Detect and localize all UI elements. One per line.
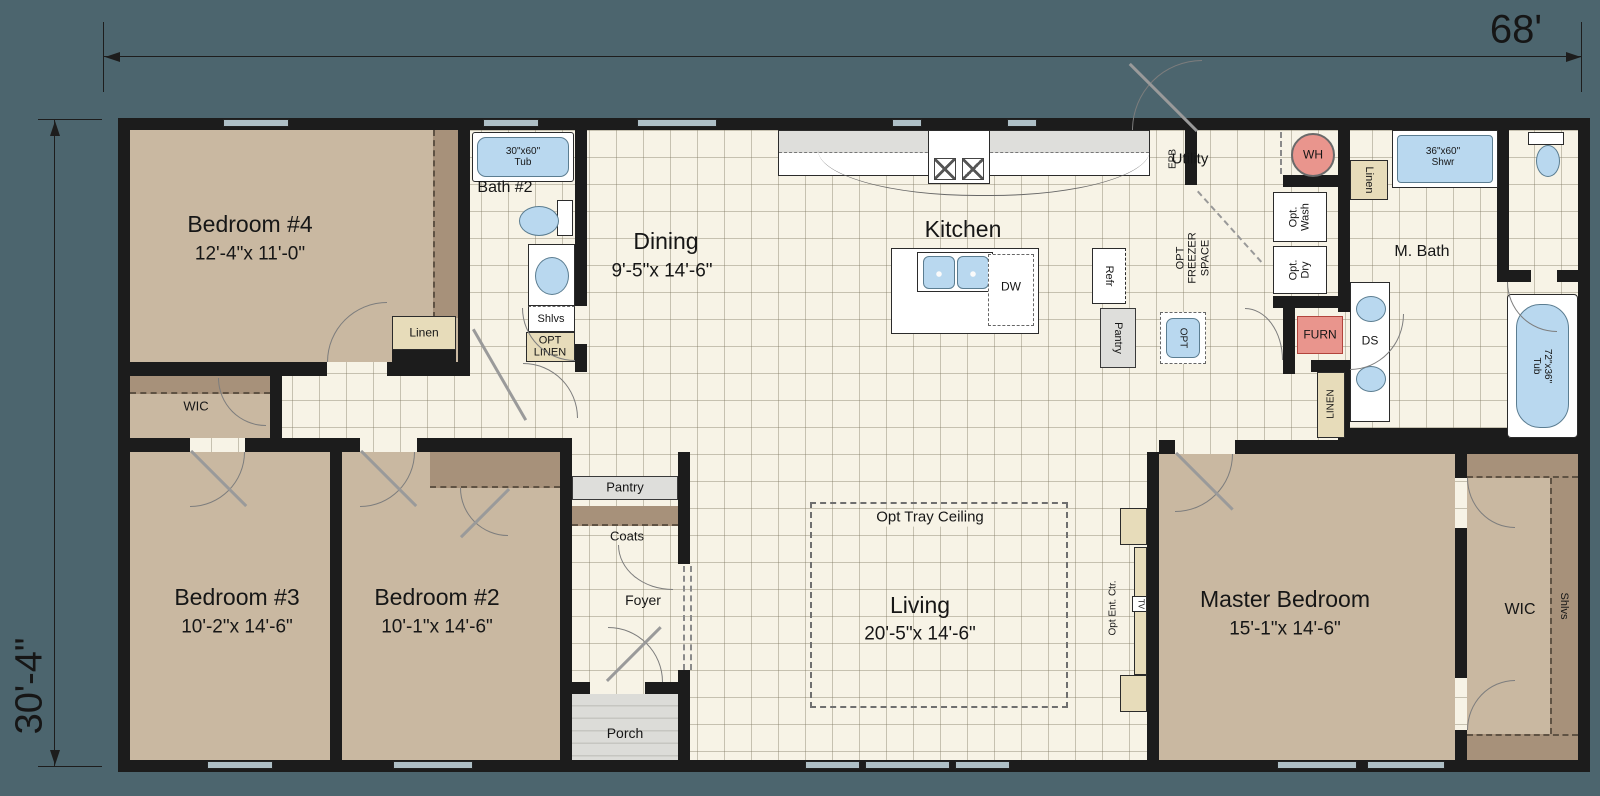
linen-tall-label: LINEN [1325, 389, 1336, 418]
wall [1235, 440, 1578, 454]
bedroom4-label: Bedroom #4 [187, 212, 312, 238]
wall [678, 452, 690, 564]
overall-width-dimension: 68' [1490, 8, 1542, 53]
wall [387, 362, 470, 376]
porch-label: Porch [607, 726, 644, 742]
bathtub-bath2-label: 30"x60" Tub [506, 146, 540, 168]
opt-sink-label: OPT [1177, 328, 1188, 349]
closet-bedroom2 [430, 452, 560, 488]
bath2-label: Bath #2 [477, 179, 532, 197]
coats-label: Coats [610, 530, 644, 545]
window [805, 761, 860, 769]
door [1350, 314, 1404, 370]
wall [572, 682, 590, 694]
living-size: 20'-5"x 14'-6" [864, 623, 976, 644]
wall [678, 682, 690, 772]
toilet-bath2 [557, 200, 573, 236]
door [523, 363, 578, 418]
wall [245, 438, 360, 452]
ent-center-upper [1120, 508, 1147, 545]
wall [392, 350, 456, 362]
kitchen-label: Kitchen [925, 217, 1002, 243]
window [1277, 761, 1357, 769]
wic-master-label: WIC [1504, 601, 1535, 619]
window [1007, 119, 1037, 127]
linen-mbath-label: Linen [1363, 167, 1375, 194]
burner-icon [962, 158, 984, 180]
refrigerator-label: Refr [1103, 266, 1115, 287]
bedroom3-size: 10'-2"x 14'-6" [181, 616, 293, 637]
window [207, 761, 273, 769]
wall [330, 452, 342, 760]
dimension-line-top [104, 56, 1581, 57]
wall [1557, 270, 1578, 282]
bathtub-master-label: 72"x36" Tub [1531, 349, 1553, 383]
wall [458, 130, 470, 362]
arrow-right-icon [1566, 52, 1581, 62]
window [223, 119, 289, 127]
linen-hall-label: Linen [409, 326, 438, 339]
water-heater-label: WH [1303, 148, 1323, 161]
window [393, 761, 473, 769]
coats-closet [572, 506, 678, 526]
ent-center-label: Opt Ent. Ctr. [1107, 580, 1118, 635]
window [955, 761, 1010, 769]
master-label: Master Bedroom [1200, 587, 1370, 613]
door [608, 627, 663, 682]
overall-depth-dimension: 30'-4" [9, 638, 52, 735]
closet-bedroom4 [433, 130, 458, 318]
wall [575, 344, 587, 372]
wall [1455, 528, 1467, 678]
door [472, 329, 527, 421]
door [618, 545, 673, 590]
wall [270, 376, 282, 438]
wall [1147, 452, 1159, 760]
epb-label: EPB [1167, 149, 1178, 169]
wall [1338, 130, 1350, 312]
dining-label: Dining [633, 229, 698, 255]
foyer-label: Foyer [625, 593, 661, 609]
arrow-down-icon [50, 750, 60, 765]
opt-dryer-label: Opt. Dry [1288, 260, 1313, 281]
pantry-kitchen-label: Pantry [1112, 322, 1124, 354]
sink-oval [1356, 366, 1386, 392]
wall [575, 130, 587, 306]
toilet-master [1528, 132, 1564, 145]
dishwasher-label: DW [1001, 280, 1021, 293]
mbath-label: M. Bath [1394, 243, 1449, 261]
window [637, 119, 717, 127]
burner-icon [934, 158, 956, 180]
house-outline: 30"x60" Tub Shlvs OPT LINEN Linen DW Ref… [118, 118, 1590, 772]
ent-center-lower [1120, 675, 1147, 712]
dining-size: 9'-5"x 14'-6" [611, 260, 712, 281]
furnace-label: FURN [1303, 328, 1336, 341]
bedroom2-size: 10'-1"x 14'-6" [381, 616, 493, 637]
opt-freezer-label: OPT FREEZER SPACE [1175, 232, 1212, 283]
door [1245, 308, 1283, 360]
wall [1497, 130, 1509, 282]
sink-basin [923, 256, 955, 289]
dimension-line-left [54, 120, 55, 766]
bedroom2-label: Bedroom #2 [374, 585, 499, 611]
wall [417, 438, 572, 452]
wall [560, 682, 572, 772]
bedroom4-size: 12'-4"x 11'-0" [195, 243, 305, 264]
window [892, 119, 922, 127]
wall [645, 682, 678, 694]
door [1132, 60, 1202, 130]
window [1367, 761, 1445, 769]
wall [1159, 440, 1175, 454]
floor-plan: 68' 30'-4" [0, 0, 1600, 796]
shower-label: 36"x60" Shwr [1426, 146, 1460, 168]
sink-basin [957, 256, 989, 289]
wall [1509, 270, 1531, 282]
window [483, 119, 539, 127]
master-size: 15'-1"x 14'-6" [1229, 618, 1341, 639]
arrow-up-icon [50, 121, 60, 136]
wall [130, 438, 190, 452]
tray-ceiling-label: Opt Tray Ceiling [870, 510, 990, 527]
shelves-wic-label: Shlvs [1558, 593, 1570, 620]
living-label: Living [890, 593, 950, 619]
bedroom3-label: Bedroom #3 [174, 585, 299, 611]
wall [130, 362, 327, 376]
wall [1311, 360, 1350, 372]
wall [1455, 730, 1467, 760]
wall [1283, 308, 1295, 374]
tv-label: TV [1136, 599, 1145, 609]
arrow-left-icon [105, 52, 120, 62]
wic-left-label: WIC [183, 400, 208, 415]
wall [1455, 452, 1467, 478]
opt-washer-label: Opt. Wash [1288, 203, 1313, 231]
window [865, 761, 950, 769]
pantry-foyer-label: Pantry [606, 481, 644, 496]
